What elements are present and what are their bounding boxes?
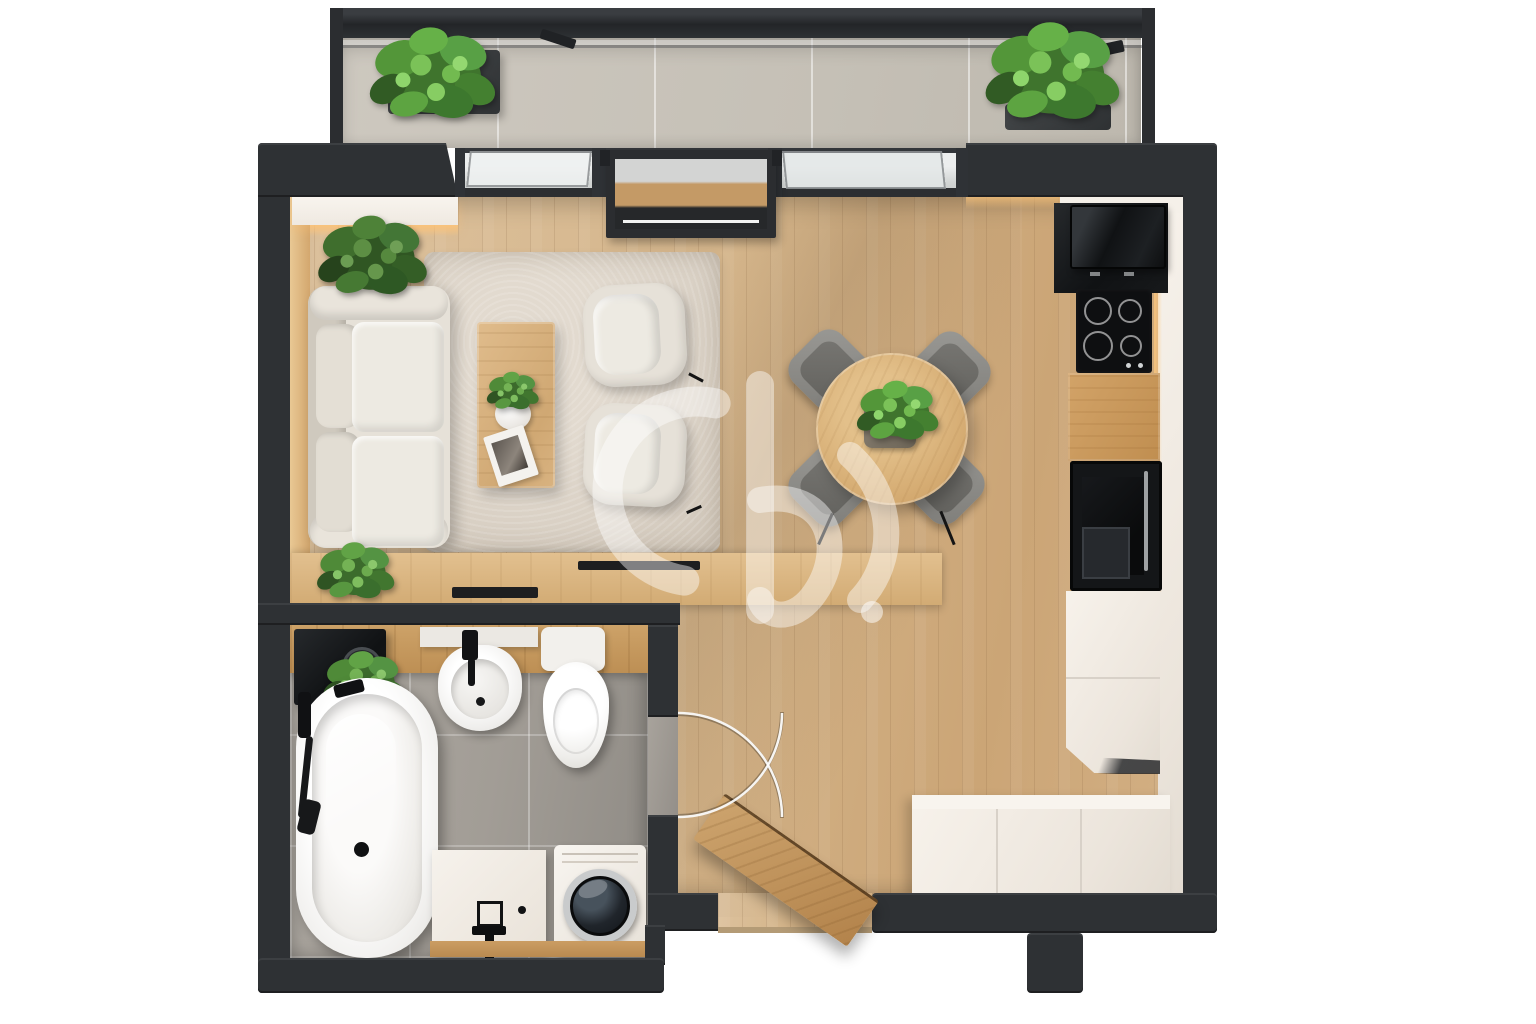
watermark-dot <box>861 601 883 623</box>
watermark-logo <box>560 360 960 700</box>
floor-plan-render <box>0 0 1536 1024</box>
